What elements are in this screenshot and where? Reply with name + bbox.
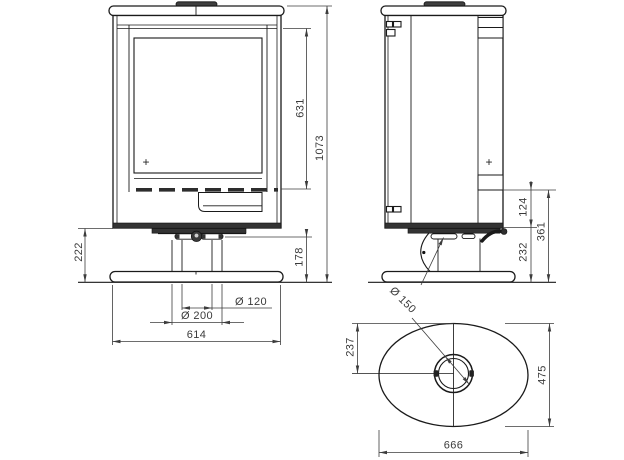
side-view: + [368, 2, 556, 283]
ring-bolt-right [469, 370, 474, 376]
front-center-mark: + [142, 155, 149, 169]
dim-hole-diameter: Ø 120 [182, 284, 272, 310]
front-top-plate [109, 6, 284, 16]
dim-label-178: 178 [294, 247, 306, 267]
front-pedestal-column [172, 240, 222, 272]
dim-label-614: 614 [187, 329, 207, 341]
front-view: + [78, 2, 332, 283]
dim-door-height: 631 [281, 29, 311, 190]
dim-label-631: 631 [295, 98, 307, 118]
ring-bolt-left [434, 370, 439, 376]
dim-label-d200: Ø 200 [181, 310, 213, 322]
side-base-plate [382, 272, 515, 283]
dim-connection-height: 361 [536, 190, 551, 282]
front-ash-lip [199, 193, 263, 212]
stove-dimension-drawing: + [0, 0, 624, 460]
dim-label-237: 237 [345, 337, 357, 357]
side-bolt-slots [431, 234, 475, 239]
side-body [385, 16, 503, 229]
dim-overall-height: 1073 [287, 6, 332, 282]
front-base-plate [110, 272, 283, 283]
dim-label-361: 361 [536, 222, 548, 242]
dim-pedestal-height: 222 [73, 229, 113, 283]
side-top-plate [381, 6, 506, 16]
dim-label-475: 475 [537, 365, 549, 385]
side-bottom-bar [385, 223, 503, 233]
front-door-glass [134, 38, 262, 179]
dim-label-222: 222 [73, 242, 85, 262]
dim-label-124: 124 [518, 197, 530, 217]
technical-drawing-stage: + [0, 0, 624, 460]
dim-mount-diameter: Ø 200 [150, 284, 244, 325]
dim-label-1073: 1073 [314, 135, 326, 161]
dim-label-232: 232 [518, 242, 530, 262]
side-center-mark: + [485, 155, 492, 169]
dim-label-d120: Ø 120 [235, 296, 267, 308]
dim-label-d150: Ø 150 [387, 285, 418, 316]
dim-plate-length: 666 [379, 430, 528, 457]
top-view [352, 324, 528, 427]
dim-label-666: 666 [444, 440, 464, 452]
